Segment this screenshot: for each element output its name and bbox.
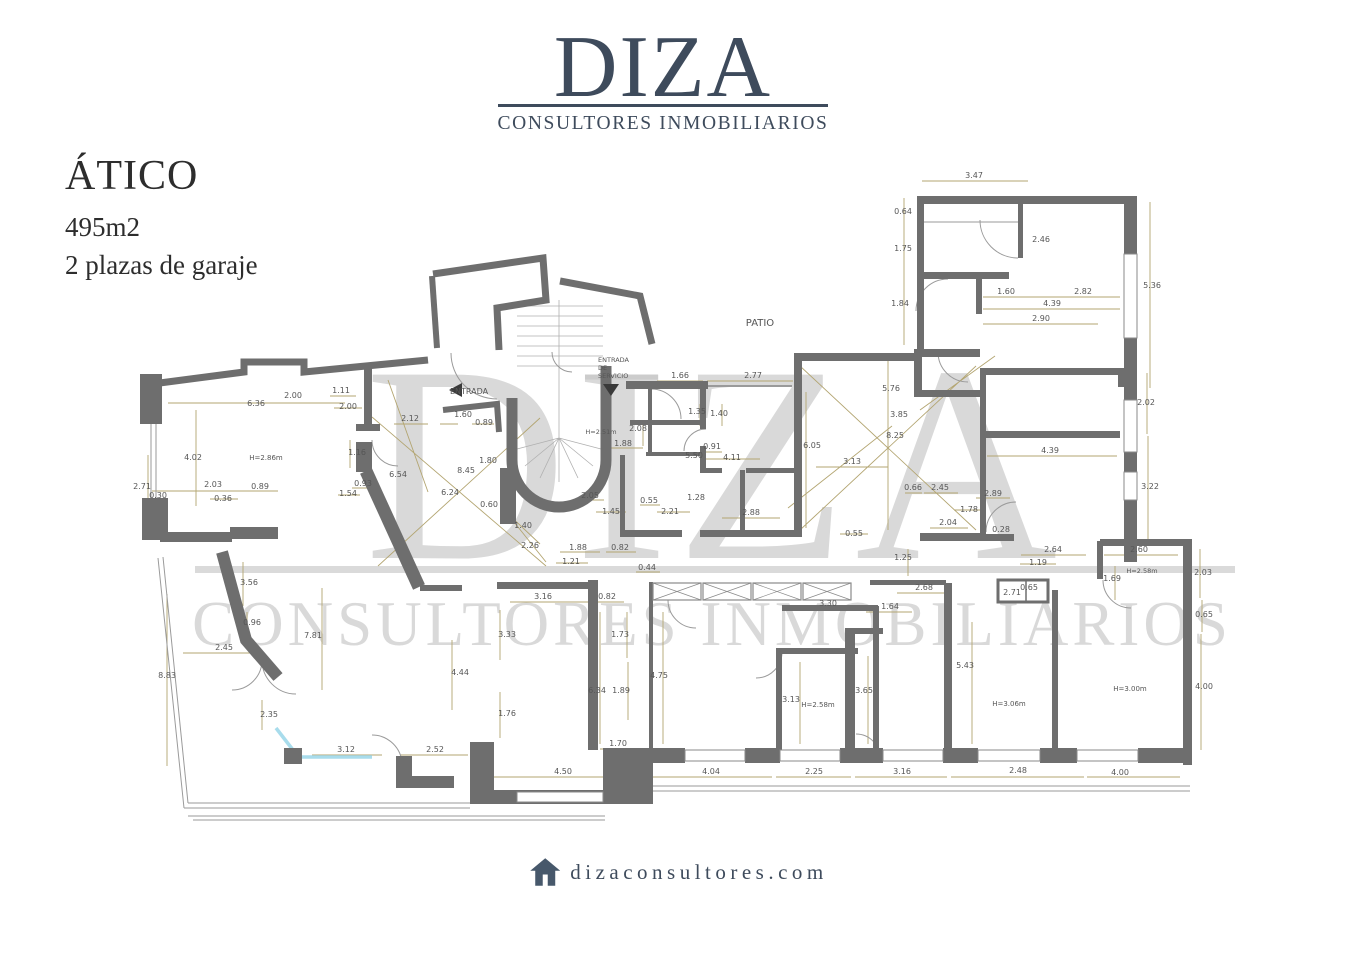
dimension-label: 3.33 [498,630,516,639]
dimension-label: 0.82 [611,543,629,552]
room-label-entrada-servicio: SERVICIO [598,372,628,380]
dimension-label: 1.54 [339,489,357,498]
height-label: H=3.00m [1113,685,1147,693]
dimension-label: 4.39 [1041,446,1059,455]
dimension-label: 0.82 [598,592,616,601]
dimension-label: 4.02 [184,453,202,462]
dimension-label: 0.64 [894,207,912,216]
dimension-label: 6.34 [588,686,606,695]
dimension-label: 2.35 [260,710,278,719]
dimension-label: 2.60 [1130,545,1148,554]
dimension-label: 2.82 [1074,287,1092,296]
dimension-label: 2.71 [1003,588,1021,597]
room-label-entrada-servicio: ENTRADA [598,356,630,364]
dimension-label: 1.64 [881,602,899,611]
dimension-label: 1.28 [687,493,705,502]
dimension-label: 8.45 [457,466,475,475]
dimension-label: 1.76 [498,709,516,718]
dimension-label: 0.60 [480,500,498,509]
dimension-label: 1.45 [602,507,620,516]
dimension-label: 2.48 [1009,766,1027,775]
dimension-label: 1.69 [1103,574,1121,583]
dimension-label: 1.88 [569,543,587,552]
dimension-label: 2.52 [426,745,444,754]
dimension-label: 6.54 [389,470,407,479]
dimension-label: 0.44 [638,563,656,572]
dimension-label: 2.90 [1032,314,1050,323]
dimension-label: 0.30 [149,491,167,500]
dimension-label: 1.60 [454,410,472,419]
dimension-label: 1.60 [997,287,1015,296]
dimension-label: 1.70 [609,739,627,748]
dimension-label: 0.89 [475,418,493,427]
dimension-label: 0.66 [904,483,922,492]
dimension-label: 2.88 [742,508,760,517]
watermark-rule [195,566,1235,573]
dimension-label: 1.78 [960,505,978,514]
dimension-label: 3.13 [782,695,800,704]
dimension-label: 4.00 [1111,768,1129,777]
dimension-label: 3.30 [819,599,837,608]
height-label: H=3.06m [992,700,1026,708]
dimension-label: 4.04 [702,767,720,776]
dimension-label: 1.89 [612,686,630,695]
dimension-label: 2.45 [215,643,233,652]
dimension-label: 2.45 [931,483,949,492]
dimension-label: 4.00 [1195,682,1213,691]
dimension-label: 2.05 [581,491,599,500]
dimension-label: 1.73 [611,630,629,639]
dimension-label: 2.08 [629,424,647,433]
dimension-label: 1.11 [332,386,350,395]
dimension-label: 0.55 [640,496,658,505]
dimension-label: 2.12 [401,414,419,423]
room-label-entrada-servicio: DE [598,364,607,372]
height-label: H=2.51m [585,428,616,436]
dimension-label: 1.88 [614,439,632,448]
dimension-label: 2.68 [915,583,933,592]
dimension-label: 2.00 [339,402,357,411]
dimension-label: 4.75 [650,671,668,680]
dimension-label: 2.00 [284,391,302,400]
height-label: H=2.58m [801,701,835,709]
dimension-label: 5.76 [882,384,900,393]
dimension-label: 2.21 [661,507,679,516]
dimension-label: 1.19 [1029,558,1047,567]
dimension-label: 4.50 [554,767,572,776]
dimension-label: 2.02 [1137,398,1155,407]
dimension-label: 1.35 [688,407,706,416]
dimension-label: 0.65 [1020,583,1038,592]
dimension-label: 3.47 [965,171,983,180]
dimension-label: 2.64 [1044,545,1062,554]
dimension-label: 1.75 [894,244,912,253]
dimension-label: 3.16 [534,592,552,601]
dimension-label: 4.39 [1043,299,1061,308]
site-footer: dizaconsultores.com [530,858,828,886]
dimension-label: 5.43 [956,661,974,670]
dimension-label: 2.25 [805,767,823,776]
dimension-label: 1.40 [514,521,532,530]
floor-plan: DIZA CONSULTORES INMOBILIARIOS [0,0,1358,960]
dimension-label: 3.12 [337,745,355,754]
dimension-label: 3.65 [855,686,873,695]
room-label-entrada: ENTRADA [450,387,489,396]
dimension-label: 0.36 [214,494,232,503]
dimension-label: 1.16 [348,448,366,457]
page: DIZA CONSULTORES INMOBILIARIOS ÁTICO 495… [0,0,1358,960]
watermark: DIZA CONSULTORES INMOBILIARIOS [192,308,1235,659]
dimension-label: 1.66 [671,371,689,380]
dimension-label: 2.46 [1032,235,1050,244]
footer-url[interactable]: dizaconsultores.com [570,860,828,885]
dimension-label: 3.16 [893,767,911,776]
dimension-label: 0.93 [354,479,372,488]
dimension-label: 0.55 [845,529,863,538]
dimension-label: 3.56 [240,578,258,587]
dimension-label: 7.81 [304,631,322,640]
dimension-label: 5.50 [685,451,703,460]
dimension-label: 8.25 [886,431,904,440]
house-icon [530,858,560,886]
dimension-label: 0.89 [251,482,269,491]
dimension-label: 2.26 [521,541,539,550]
dimension-label: 2.04 [939,518,957,527]
dimension-label: 8.83 [158,671,176,680]
dimension-label: 0.91 [703,442,721,451]
dimension-label: 3.85 [890,410,908,419]
height-label: H=2.58m [1126,567,1157,575]
dimension-label: 1.80 [479,456,497,465]
dimension-label: 2.89 [984,489,1002,498]
dimension-label: 4.11 [723,453,741,462]
dimension-label: 2.71 [133,482,151,491]
dimension-label: 3.13 [843,457,861,466]
dimension-label: 1.84 [891,299,909,308]
dimension-label: 6.36 [247,399,265,408]
dimension-label: 2.03 [1194,568,1212,577]
dimension-label: 1.40 [710,409,728,418]
room-label-patio: PATIO [746,318,775,329]
dimension-label: 4.44 [451,668,469,677]
dimension-label: 1.21 [562,557,580,566]
dimension-label: 0.65 [1195,610,1213,619]
dimension-label: 5.36 [1143,281,1161,290]
dimension-label: 0.28 [992,525,1010,534]
height-label: H=2.86m [249,454,283,462]
dimension-label: 3.22 [1141,482,1159,491]
dimension-label: 2.77 [744,371,762,380]
dimension-label: 6.24 [441,488,459,497]
dimension-label: 6.05 [803,441,821,450]
dimension-label: 2.03 [204,480,222,489]
dimension-label: 0.96 [243,618,261,627]
dimension-label: 1.25 [894,553,912,562]
